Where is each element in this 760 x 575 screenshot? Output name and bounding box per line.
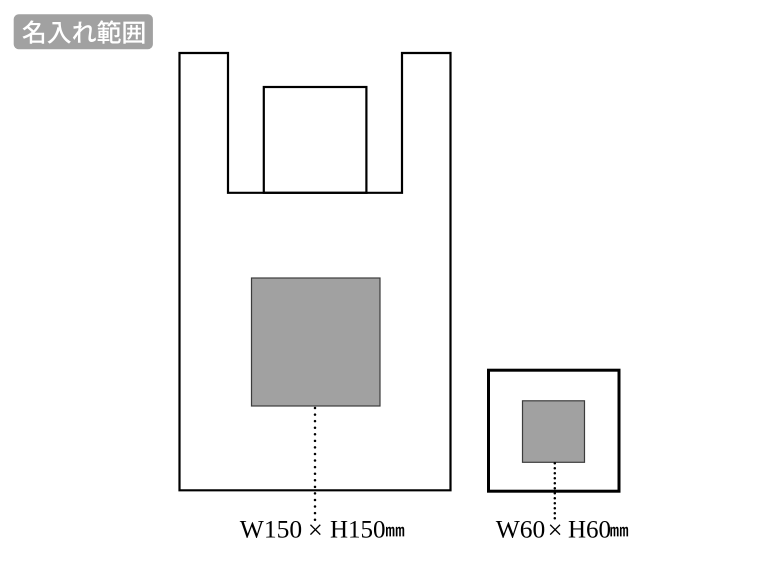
svg-text:H150: H150 (330, 516, 386, 543)
svg-text:W150: W150 (240, 514, 302, 543)
svg-text:H60: H60 (568, 516, 611, 543)
svg-text:W60: W60 (496, 514, 546, 543)
svg-text:×: × (548, 515, 563, 545)
svg-text:×: × (308, 515, 323, 545)
